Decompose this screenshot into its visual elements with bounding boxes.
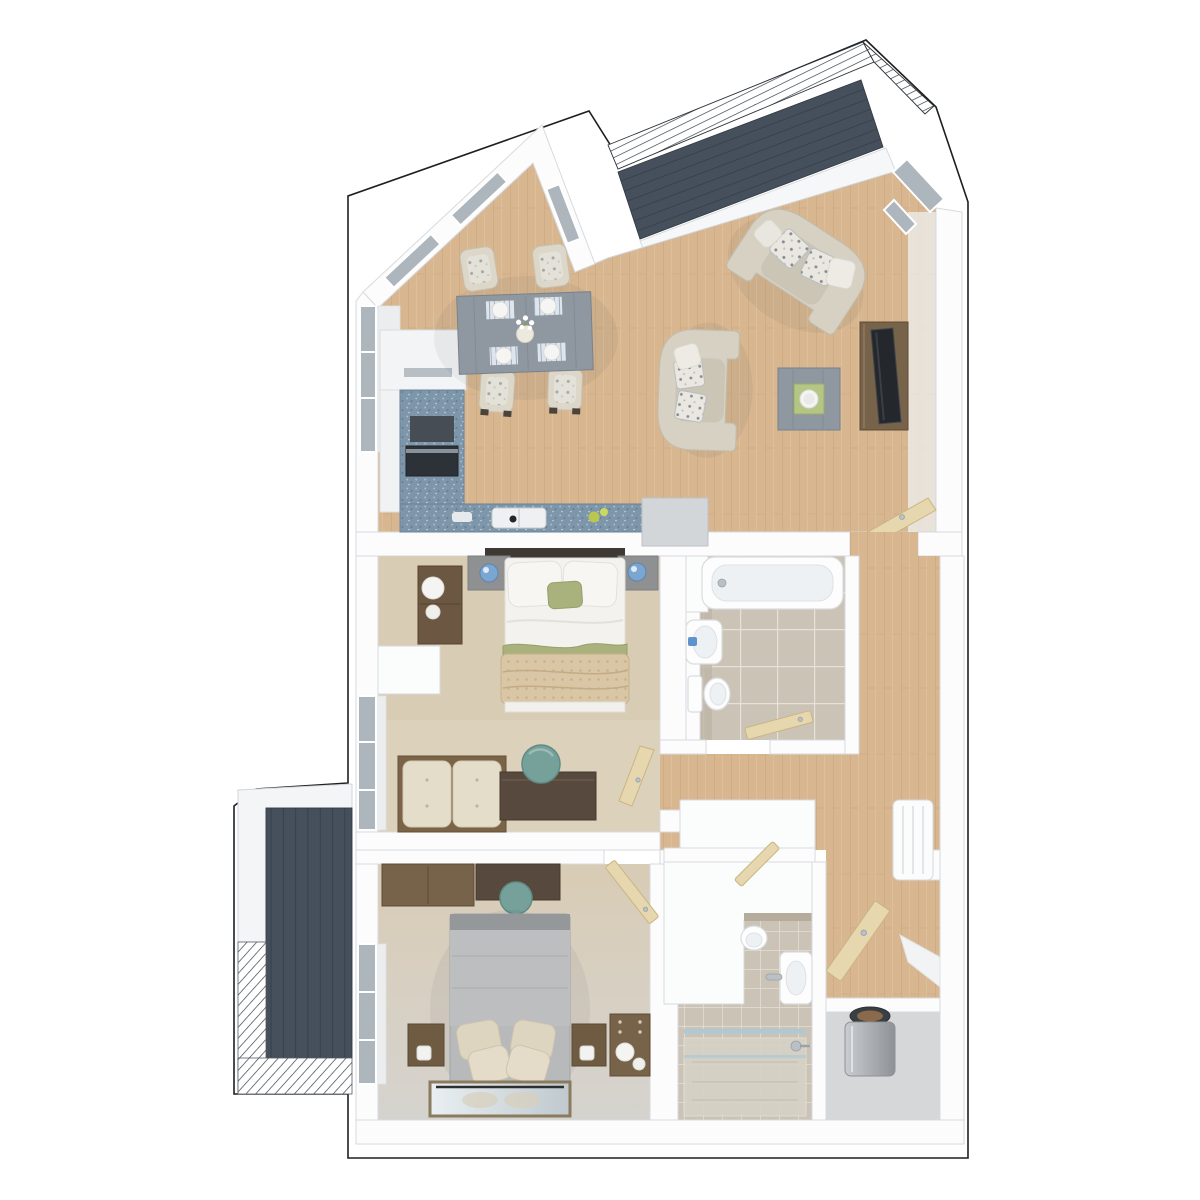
chair-cushion (538, 251, 563, 281)
mirror-reflection (462, 1092, 498, 1108)
bath-tap-icon (718, 579, 726, 587)
balcony-left-decking (266, 808, 352, 1058)
drawer-knob (618, 1030, 621, 1033)
bathtub (702, 557, 843, 609)
tv-unit (860, 322, 908, 430)
bowl (422, 577, 444, 599)
hob (410, 416, 454, 442)
peninsula-cabinet (642, 498, 708, 546)
chair-leg (480, 409, 488, 416)
storage-bench (398, 756, 506, 832)
bench-cushion (403, 761, 451, 827)
chest-of-drawers (610, 1014, 650, 1076)
balcony-left (238, 784, 352, 1094)
hall-storage-closet (680, 800, 815, 848)
shower-glass-screen (684, 1055, 806, 1058)
stool (500, 882, 532, 914)
wall-under-closet (664, 848, 815, 862)
fridge-steel-strip (404, 368, 452, 377)
mirror-reflection (504, 1092, 540, 1108)
plate (543, 344, 560, 361)
table-plate-inner (804, 394, 815, 405)
double-bed-2 (430, 910, 590, 1110)
plate (540, 298, 557, 315)
drawer-knob (618, 1020, 621, 1023)
coffee-table (778, 368, 840, 430)
blue-lamp-highlight (483, 567, 489, 573)
floor-plan-render (0, 0, 1200, 1200)
toilet-1 (688, 676, 730, 712)
round-mirror (616, 1043, 634, 1061)
bathroom-east-wall (845, 556, 859, 754)
drawer-knob (638, 1030, 641, 1033)
white-cushion (825, 257, 857, 290)
chair-leg (503, 411, 511, 418)
fruit (600, 508, 608, 516)
bathroom-south-wall-west (660, 740, 706, 754)
cylinder-copper (857, 1011, 883, 1022)
kitchen-window (360, 306, 376, 452)
bedroom2-window (358, 944, 376, 1084)
shower-glass-screen (684, 1029, 806, 1034)
balcony-left-railing-icon (238, 1058, 352, 1094)
basin-tap-icon (766, 974, 782, 980)
floor-mirror (430, 1082, 570, 1116)
living-right-wall-face (908, 212, 936, 532)
dish (452, 512, 472, 522)
sink-tap (510, 516, 517, 523)
cushion-button (425, 804, 428, 807)
chair-cushion (554, 375, 577, 404)
door-handle-icon (900, 515, 905, 520)
chair-leg (572, 408, 580, 414)
bed-foot-band (505, 702, 625, 712)
toilet-2 (741, 926, 767, 950)
oven-handle (406, 449, 458, 453)
hall-wood-doorway (850, 532, 918, 556)
shower-north-tile-band (744, 913, 812, 921)
plate (492, 302, 509, 319)
cushion-button (475, 804, 478, 807)
floral-cushion (674, 390, 707, 423)
cushion-button (475, 778, 478, 781)
living-right-wall (936, 208, 962, 534)
blue-lamp-icon (480, 564, 498, 582)
wash-basin-1 (686, 620, 722, 664)
table-lamp-icon (417, 1046, 431, 1060)
outer-wall-bottom (356, 1120, 964, 1144)
fruit (589, 512, 600, 523)
bowl (426, 605, 440, 619)
basin-tap-icon (688, 637, 697, 646)
chair-cushion (485, 376, 509, 405)
window-return-nib (378, 646, 440, 694)
bedroom1-south-wall (356, 832, 660, 850)
bedroom2-north-wall-west (356, 850, 604, 864)
shower-valve-icon (791, 1041, 801, 1051)
bed2-foot-band (450, 914, 570, 930)
chair-cushion (466, 253, 492, 284)
table-lamp-icon (580, 1046, 594, 1060)
chunky-throw (501, 654, 629, 704)
dividing-wall-east (918, 532, 962, 556)
bedroom1-east-wall-upper (660, 556, 686, 746)
chair-leg (549, 407, 557, 413)
bed2-duvet (450, 930, 570, 1026)
drawer-knob (638, 1020, 641, 1023)
accent-cushion (547, 581, 583, 609)
bedroom1-window (358, 696, 376, 830)
plate (496, 347, 513, 364)
blue-lamp-highlight (631, 566, 637, 572)
blue-lamp-icon (628, 563, 646, 581)
floor-plan-svg (0, 0, 1200, 1200)
window-sill (376, 696, 386, 830)
double-bed-1 (501, 558, 629, 712)
bench-cushion (453, 761, 501, 827)
utility-cupboard (845, 1007, 895, 1076)
outer-wall-right (940, 556, 964, 1120)
door-handle-icon (636, 778, 640, 782)
cushion-button (425, 778, 428, 781)
tall-chest (418, 566, 462, 644)
window-sill (376, 944, 386, 1084)
shower-east-wall (812, 862, 826, 1120)
bowl (633, 1058, 645, 1070)
shower-tray (684, 1038, 806, 1116)
